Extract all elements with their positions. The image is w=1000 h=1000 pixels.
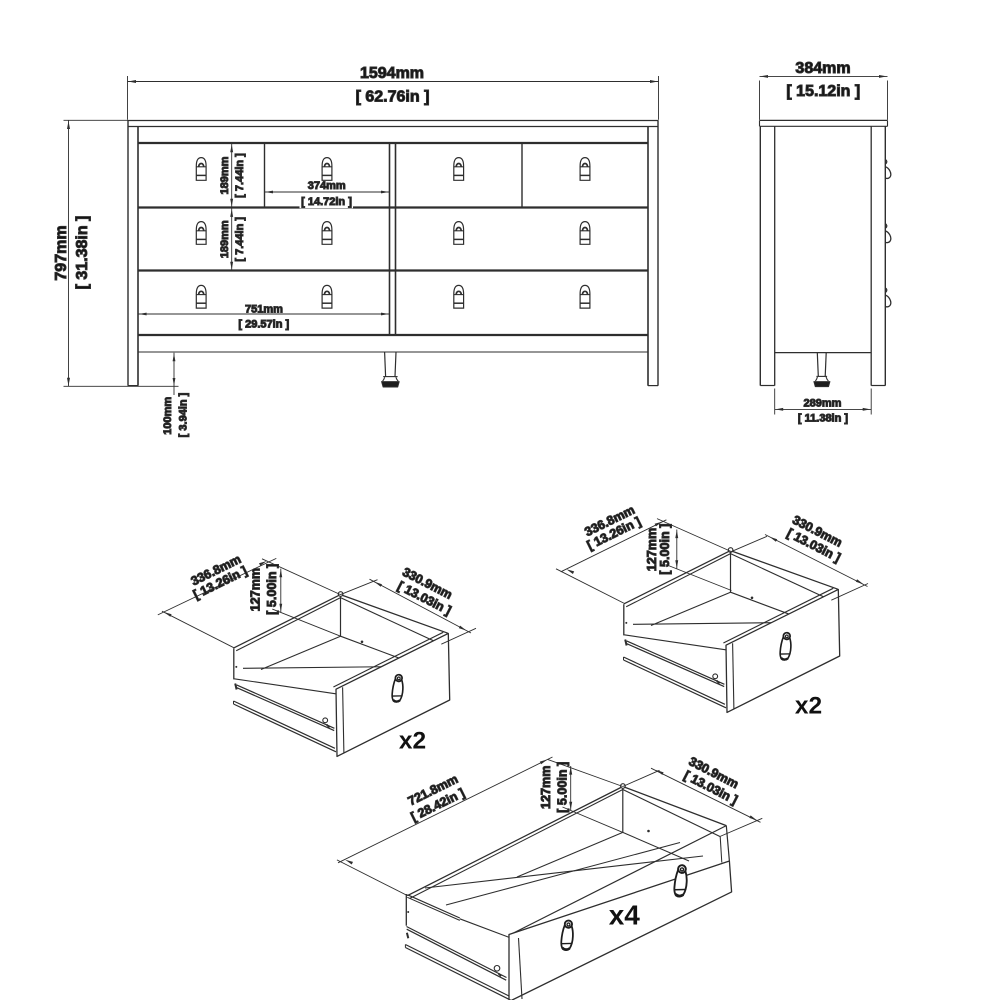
svg-text:[ 3.94in ]: [ 3.94in ] [177,392,189,437]
svg-text:1594mm: 1594mm [360,65,424,82]
svg-text:[ 5.00in ]: [ 5.00in ] [265,564,279,615]
svg-text:[ 15.12in ]: [ 15.12in ] [786,83,860,100]
svg-text:x4: x4 [609,900,641,931]
svg-text:x2: x2 [795,692,822,719]
svg-text:[ 31.38in ]: [ 31.38in ] [74,216,91,290]
svg-text:[ 7.44in ]: [ 7.44in ] [234,217,246,262]
svg-text:[ 62.76in ]: [ 62.76in ] [356,88,430,105]
svg-text:289mm: 289mm [804,398,842,410]
svg-text:751mm: 751mm [245,304,283,316]
svg-text:127mm: 127mm [539,766,553,809]
svg-text:[ 5.00in ]: [ 5.00in ] [556,762,570,813]
svg-text:100mm: 100mm [162,397,174,435]
svg-text:797mm: 797mm [53,225,70,280]
svg-text:127mm: 127mm [248,568,262,611]
svg-text:374mm: 374mm [308,180,346,192]
svg-text:[ 11.38in ]: [ 11.38in ] [798,412,848,424]
svg-text:189mm: 189mm [219,156,231,194]
svg-text:127mm: 127mm [645,528,659,571]
svg-text:384mm: 384mm [795,60,850,77]
svg-text:[ 29.57in ]: [ 29.57in ] [238,318,289,330]
svg-text:[ 14.72in ]: [ 14.72in ] [301,196,352,208]
svg-text:189mm: 189mm [219,220,231,258]
svg-text:[ 5.00in ]: [ 5.00in ] [658,524,672,575]
svg-text:x2: x2 [399,727,426,754]
svg-text:[ 7.44in ]: [ 7.44in ] [234,153,246,198]
